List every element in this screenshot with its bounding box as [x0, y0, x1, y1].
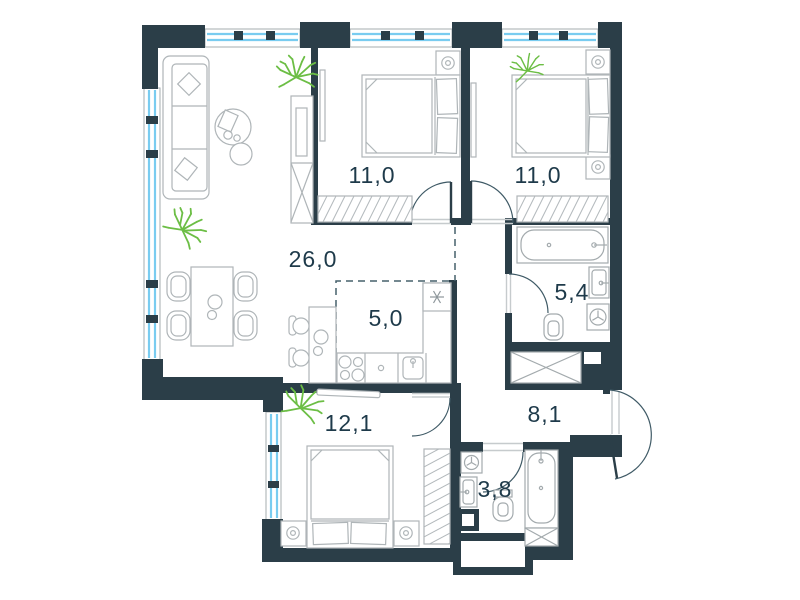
washing-machine-icon [587, 304, 609, 330]
lamp-icon [592, 56, 604, 68]
fridge-icon [423, 283, 451, 311]
tv-cabinet-icon [291, 96, 313, 223]
lamp-icon [592, 161, 604, 173]
lamp-icon [287, 527, 299, 539]
stool-icon [289, 316, 309, 367]
bar-table-icon [309, 307, 336, 383]
room-label-bedroom3: 12,1 [325, 410, 374, 436]
bedroom-2 [471, 50, 618, 226]
door-bedroom2 [471, 181, 513, 224]
sink-icon [460, 477, 477, 507]
exterior-duct-box [453, 533, 533, 575]
coffee-table-icon [215, 109, 252, 165]
plant-icon [161, 201, 212, 251]
bathtub-icon [517, 227, 608, 263]
door-bedroom3 [412, 394, 450, 437]
wardrobe-icon [312, 192, 419, 226]
window-living-left [144, 88, 160, 360]
floor-plan: 26,0 11,0 11,0 5,0 5,4 8,1 12,1 3,8 [0, 0, 800, 600]
bathroom-shaft-box [457, 509, 479, 531]
room-label-bathroom-main: 5,4 [555, 279, 590, 305]
room-label-bedroom2: 11,0 [514, 162, 561, 188]
wardrobe-icon [511, 192, 618, 226]
wardrobe-icon [422, 442, 452, 558]
sink-icon [589, 267, 609, 298]
floor-plan-canvas: 26,0 11,0 11,0 5,0 5,4 8,1 12,1 3,8 [0, 0, 800, 600]
lamp-icon [442, 57, 454, 69]
tv-icon [471, 83, 476, 157]
door-bedroom1 [410, 182, 451, 224]
toilet-icon [544, 314, 563, 340]
window-living-top [205, 29, 300, 47]
window-bedroom3 [266, 412, 281, 520]
window-bedroom2 [502, 29, 598, 47]
door-bathroom-main [507, 274, 549, 313]
dining-table-icon [191, 267, 233, 346]
bedroom-1 [312, 51, 460, 226]
bed-icon [512, 75, 610, 157]
living-room [163, 56, 313, 346]
bed-icon [307, 446, 393, 548]
room-label-living: 26,0 [289, 246, 338, 272]
room-label-bathroom-small: 3,8 [478, 476, 513, 502]
bed-icon [362, 75, 460, 157]
washing-machine-icon [461, 452, 482, 473]
kitchen [289, 283, 451, 383]
nightstand-icon [436, 51, 460, 75]
sofa-icon [163, 56, 209, 199]
tv-icon [320, 70, 325, 141]
lamp-icon [400, 527, 412, 539]
room-label-kitchen: 5,0 [369, 305, 404, 331]
room-label-bedroom1: 11,0 [348, 162, 395, 188]
bathtub-icon [525, 450, 558, 546]
room-label-hallway: 8,1 [528, 401, 563, 427]
window-bedroom1 [350, 29, 452, 47]
